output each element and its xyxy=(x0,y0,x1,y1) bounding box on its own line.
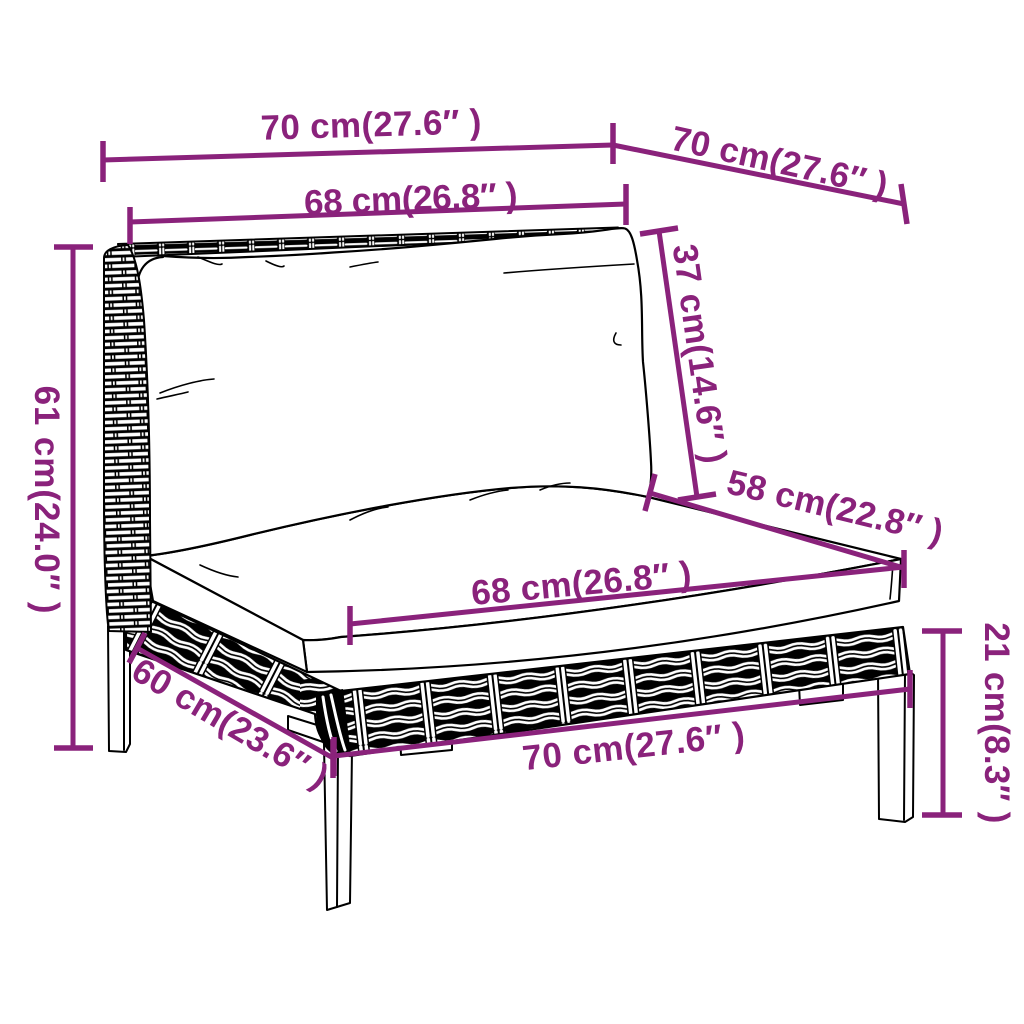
svg-text:61 cm(24.0″ ): 61 cm(24.0″ ) xyxy=(27,386,66,615)
svg-text:70 cm(27.6″ ): 70 cm(27.6″ ) xyxy=(260,102,482,148)
svg-text:21 cm(8.3″ ): 21 cm(8.3″ ) xyxy=(977,622,1016,823)
svg-text:68 cm(26.8″ ): 68 cm(26.8″ ) xyxy=(303,175,518,222)
